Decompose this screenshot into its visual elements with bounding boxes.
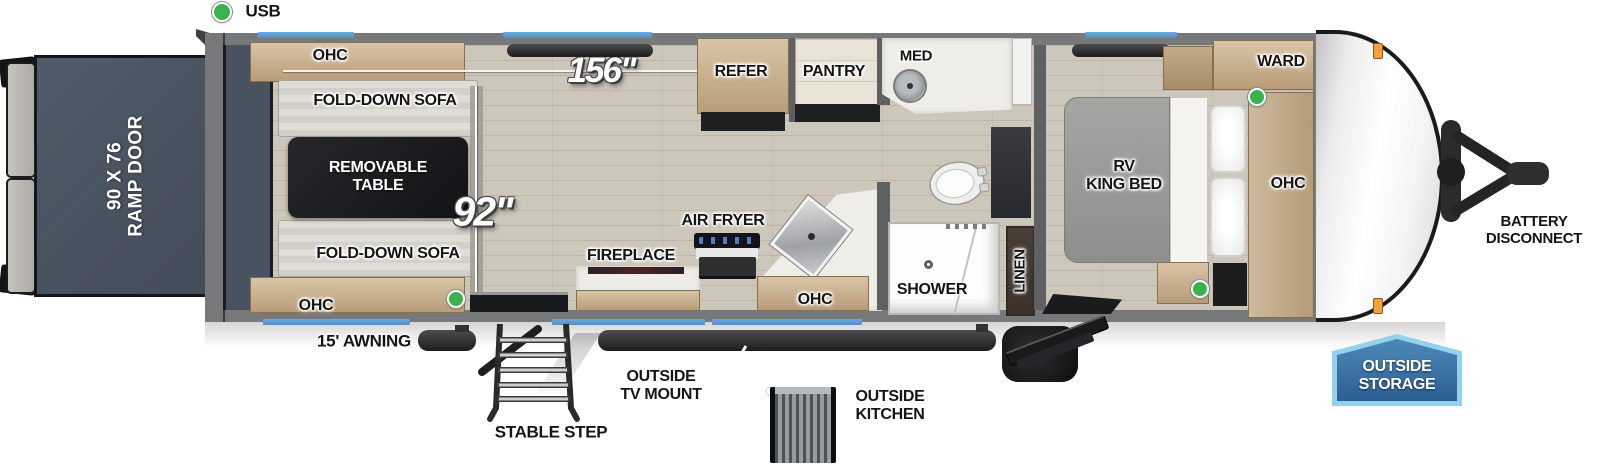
overhead-cabinet-garage-bottom xyxy=(250,277,465,313)
pantry-base xyxy=(795,104,880,122)
med-cabinet-label: MED xyxy=(900,49,932,66)
bath-door-panel xyxy=(991,127,1031,218)
bed-foot-fold xyxy=(1170,97,1208,263)
usb-indicator-garage xyxy=(447,290,465,308)
shower-label: SHOWER xyxy=(897,281,967,299)
wall-bath-bedroom xyxy=(1034,45,1046,310)
awning-label: 15' AWNING xyxy=(317,331,411,350)
shower xyxy=(888,222,1000,315)
awning-bracket xyxy=(976,324,988,332)
air-fryer-label: AIR FRYER xyxy=(682,212,765,230)
awning-bracket xyxy=(455,325,469,332)
pantry-label: PANTRY xyxy=(803,63,865,81)
outside-tv-mount-label: OUTSIDE TV MOUNT xyxy=(620,368,701,404)
vanity-sink-drain xyxy=(907,83,913,89)
overhead-cabinet-garage-top xyxy=(250,42,465,82)
refrigerator-base xyxy=(701,112,785,131)
kitchen-sink-drain xyxy=(808,233,815,240)
ladder-rail-right xyxy=(566,324,571,408)
ladder-rail-left xyxy=(496,324,500,408)
hitch-frame-lower xyxy=(1457,174,1517,210)
stable-step-label: STABLE STEP xyxy=(495,422,608,441)
removable-table-label-line2: TABLE xyxy=(329,177,427,195)
cord-path xyxy=(740,346,769,391)
floorplan-diagram: 90 X 76 RAMP DOOR REMOVABLE TABLE OHC FO… xyxy=(0,0,1600,475)
ohc-bedroom-label: OHC xyxy=(1271,175,1306,193)
dimension-156: 156" xyxy=(568,51,635,91)
awning-arm xyxy=(418,330,476,351)
bed-label-line2: KING BED xyxy=(1086,176,1162,194)
ladder-foot-left xyxy=(490,408,496,419)
usb-legend-dot xyxy=(212,2,232,22)
linen-label: LINEN xyxy=(1013,249,1030,293)
fireplace-insert xyxy=(588,267,684,274)
shower-drain xyxy=(924,260,933,269)
window-strip xyxy=(712,319,862,325)
battery-label-line1: BATTERY xyxy=(1486,214,1582,231)
ramp-rail-bottom xyxy=(6,178,36,294)
battery-label-line2: DISCONNECT xyxy=(1486,231,1582,248)
ohc-kitchen-label: OHC xyxy=(798,291,833,309)
fold-down-sofa-top-label: FOLD-DOWN SOFA xyxy=(313,92,456,110)
fold-down-sofa-bottom-label: FOLD-DOWN SOFA xyxy=(316,245,459,263)
marker-light-bottom xyxy=(1373,298,1383,314)
bath-tall-cabinet-white xyxy=(1012,38,1032,105)
toilet xyxy=(926,155,992,211)
garage-opening xyxy=(223,45,273,310)
window-strip xyxy=(258,32,354,38)
outside-storage-label-line2: STORAGE xyxy=(1359,376,1436,394)
ladder-foot-right xyxy=(571,408,577,419)
ramp-door-label-line2: RAMP DOOR xyxy=(126,115,147,236)
refer-label: REFER xyxy=(715,63,768,81)
outside-kitchen-label-line1: OUTSIDE xyxy=(855,388,924,406)
ramp-door-label: 90 X 76 RAMP DOOR xyxy=(105,115,148,236)
bedroom-dark-cabinet xyxy=(1213,263,1247,306)
tv-mount-label-line2: TV MOUNT xyxy=(620,386,701,404)
battery-disconnect-label: BATTERY DISCONNECT xyxy=(1486,214,1582,248)
overhead-cabinet-bedroom xyxy=(1248,92,1314,318)
bed-label-line1: RV xyxy=(1086,158,1162,176)
bed-pillow xyxy=(1210,105,1246,173)
entertainment-counter xyxy=(470,292,568,312)
ladder-handrail xyxy=(482,329,538,372)
usb-legend-label: USB xyxy=(246,1,281,20)
ohc-garage-bottom-label: OHC xyxy=(299,297,334,315)
hitch-jack-wheel xyxy=(1437,158,1465,186)
range-burners xyxy=(699,237,756,244)
marker-light-top xyxy=(1373,43,1383,59)
outside-kitchen-label-line2: KITCHEN xyxy=(855,406,924,424)
hitch-coupler xyxy=(1507,162,1549,185)
ramp-door-label-line1: 90 X 76 xyxy=(105,115,126,236)
ward-label: WARD xyxy=(1257,53,1305,71)
outside-storage-label-line1: OUTSIDE xyxy=(1359,358,1436,376)
tv-mount-label-line1: OUTSIDE xyxy=(620,368,701,386)
dimension-92: 92" xyxy=(452,189,511,236)
removable-table-label-line1: REMOVABLE xyxy=(329,159,427,177)
tv-bedroom xyxy=(1072,44,1170,57)
window-strip xyxy=(1085,32,1177,38)
stable-step-ladder xyxy=(478,320,588,424)
range-oven xyxy=(699,257,756,279)
outside-kitchen-label: OUTSIDE KITCHEN xyxy=(855,388,924,424)
toilet-hinge xyxy=(979,183,989,192)
window-strip xyxy=(263,319,410,325)
removable-table-label: REMOVABLE TABLE xyxy=(329,159,427,195)
rv-king-bed-label: RV KING BED xyxy=(1086,158,1162,194)
usb-indicator-bedroom-top xyxy=(1248,88,1266,106)
fireplace-label: FIREPLACE xyxy=(587,247,675,265)
front-cap xyxy=(1316,30,1444,322)
tv-main xyxy=(507,44,653,57)
wall-rear xyxy=(205,33,225,322)
bedroom-corner-cabinet xyxy=(1163,46,1213,90)
shower-head-jets xyxy=(946,224,988,229)
bed-pillow xyxy=(1210,177,1246,257)
ohc-garage-top-label: OHC xyxy=(313,47,348,65)
ramp-rail-top xyxy=(6,62,36,178)
kitchen-cabinet-left xyxy=(576,290,700,311)
awning-roller xyxy=(598,330,996,351)
outside-storage-label: OUTSIDE STORAGE xyxy=(1359,358,1436,394)
usb-indicator-bedroom-bottom xyxy=(1191,280,1209,298)
outside-kitchen-griddle xyxy=(770,387,836,463)
window-strip xyxy=(503,32,652,38)
toilet-hinge xyxy=(977,167,987,176)
